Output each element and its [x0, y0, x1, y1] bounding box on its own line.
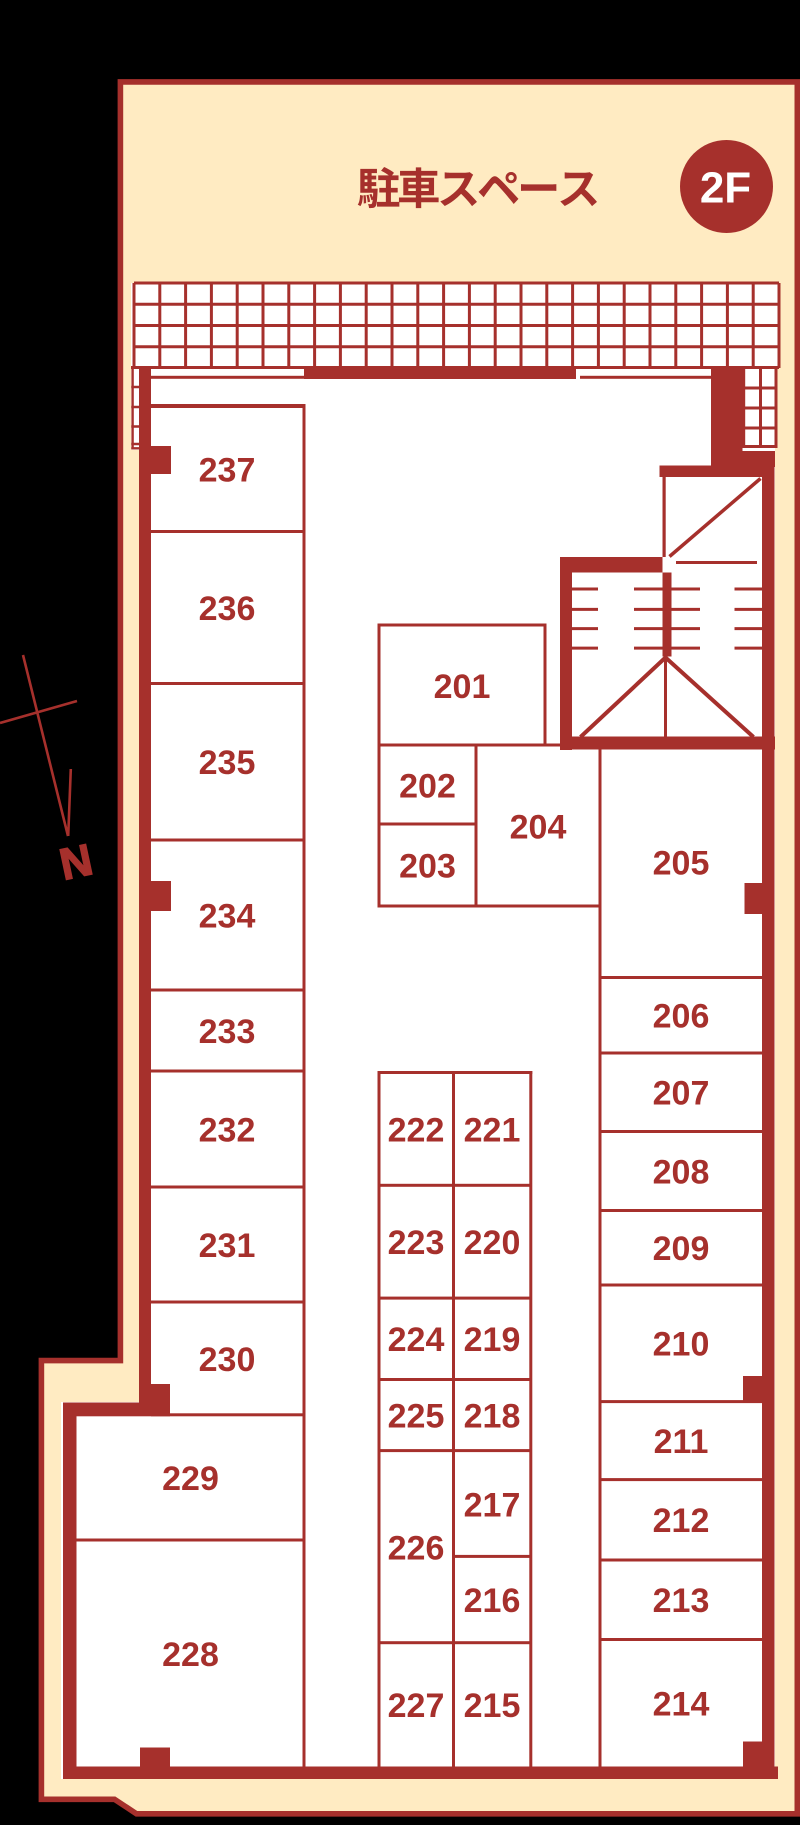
svg-text:203: 203 [399, 847, 456, 885]
svg-text:236: 236 [199, 590, 256, 628]
svg-text:211: 211 [654, 1423, 709, 1461]
svg-text:217: 217 [464, 1486, 521, 1524]
svg-text:214: 214 [653, 1686, 710, 1724]
svg-text:232: 232 [199, 1111, 256, 1149]
svg-text:235: 235 [199, 744, 256, 782]
svg-text:2F: 2F [700, 163, 751, 212]
svg-text:230: 230 [199, 1341, 256, 1379]
svg-text:201: 201 [434, 668, 491, 706]
svg-text:202: 202 [399, 767, 456, 805]
svg-text:229: 229 [162, 1460, 219, 1498]
svg-text:207: 207 [653, 1075, 710, 1113]
svg-text:226: 226 [388, 1530, 445, 1568]
svg-text:228: 228 [162, 1636, 219, 1674]
svg-text:210: 210 [653, 1326, 710, 1364]
svg-text:221: 221 [464, 1111, 521, 1149]
svg-text:206: 206 [653, 998, 710, 1036]
svg-text:204: 204 [510, 808, 567, 846]
svg-text:237: 237 [199, 451, 256, 489]
svg-text:218: 218 [464, 1398, 521, 1436]
svg-text:209: 209 [653, 1230, 710, 1268]
svg-text:208: 208 [653, 1153, 710, 1191]
svg-text:205: 205 [653, 844, 710, 882]
svg-text:234: 234 [199, 897, 256, 935]
svg-text:215: 215 [464, 1687, 521, 1725]
svg-text:233: 233 [199, 1013, 256, 1051]
svg-text:223: 223 [388, 1224, 445, 1262]
svg-text:227: 227 [388, 1687, 445, 1725]
svg-text:213: 213 [653, 1582, 710, 1620]
svg-text:222: 222 [388, 1111, 445, 1149]
svg-text:220: 220 [464, 1224, 521, 1262]
svg-text:231: 231 [199, 1227, 256, 1265]
svg-text:212: 212 [653, 1502, 710, 1540]
svg-text:219: 219 [464, 1321, 521, 1359]
svg-text:224: 224 [388, 1321, 445, 1359]
svg-text:225: 225 [388, 1398, 445, 1436]
svg-text:216: 216 [464, 1582, 521, 1620]
